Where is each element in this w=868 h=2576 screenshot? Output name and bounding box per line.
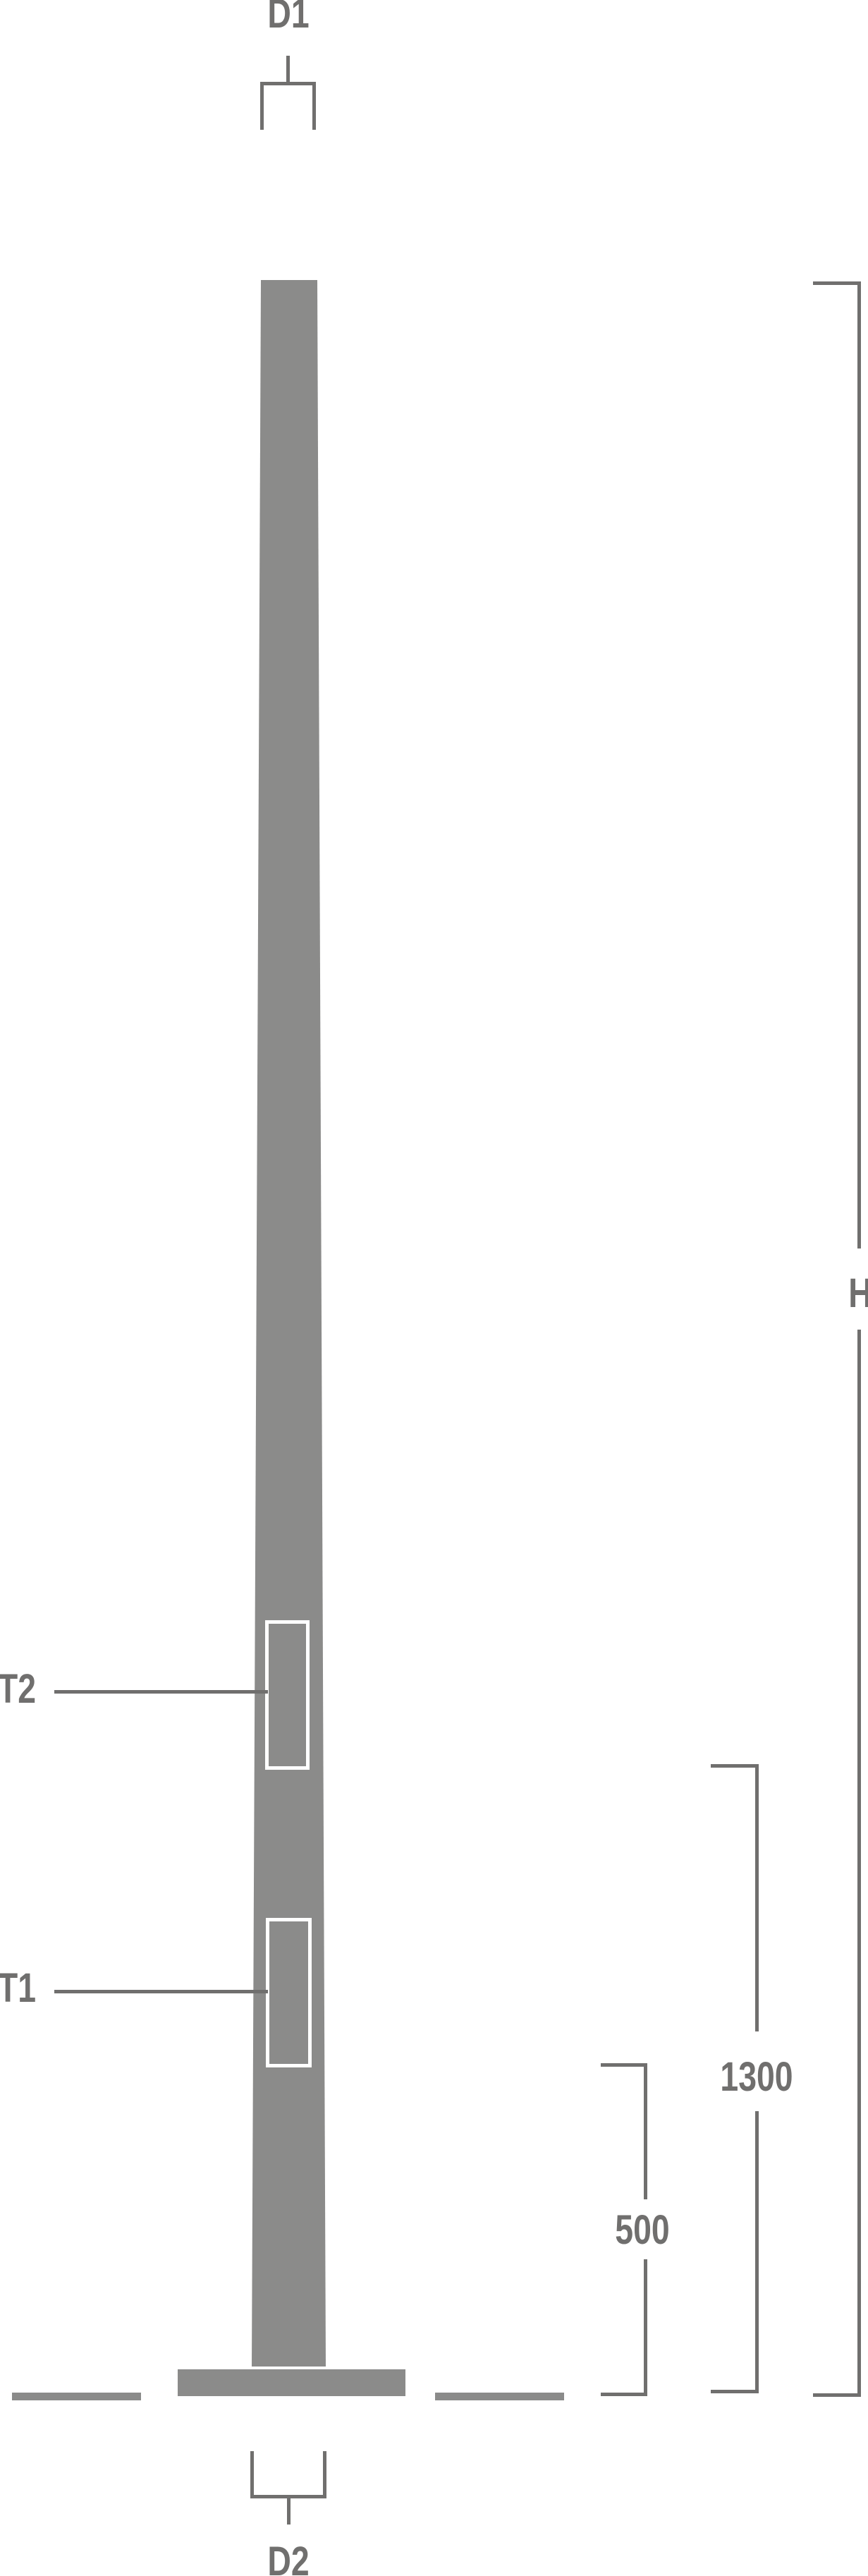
dim-1300-bottom-tick [711, 2390, 759, 2393]
h-bottom-tick [813, 2393, 861, 2397]
dim-500-label: 500 [586, 2210, 699, 2251]
d1-label: D1 [232, 0, 345, 35]
d1-bracket-leg-left [260, 82, 264, 130]
dim-1300-label: 1300 [700, 2057, 813, 2098]
pole-diagram-canvas: D1 T2 T1 H 1300 500 [0, 0, 868, 2576]
h-top-tick [813, 281, 861, 285]
h-extension-upper [857, 281, 861, 1248]
dim-500-extension-lower [644, 2259, 647, 2396]
ground-line-right [435, 2393, 564, 2400]
dim-500-bottom-tick [601, 2393, 647, 2396]
dim-500-top-tick [601, 2063, 647, 2067]
t1-label: T1 [0, 1968, 73, 2009]
h-label: H [804, 1273, 868, 1314]
t2-label: T2 [0, 1669, 73, 1710]
dim-1300-top-tick [711, 1764, 759, 1768]
d1-bracket-stem [286, 56, 290, 85]
d1-bracket-bar [260, 82, 316, 85]
d2-bracket-leg-right [323, 2451, 326, 2498]
d2-bracket-leg-left [250, 2451, 254, 2498]
t1-access-panel [266, 1918, 312, 2067]
d2-bracket-stem [287, 2498, 291, 2525]
t2-access-panel [265, 1620, 310, 1770]
t2-leader-line [54, 1690, 268, 1694]
pole-base-plate [178, 2369, 405, 2396]
h-extension-lower [857, 1330, 861, 2397]
dim-500-extension-upper [644, 2063, 647, 2199]
d1-bracket-leg-right [312, 82, 316, 130]
dim-1300-extension-upper [755, 1764, 759, 2031]
ground-line-left [12, 2393, 141, 2400]
d2-label: D2 [232, 2541, 345, 2576]
dim-1300-extension-lower [755, 2111, 759, 2393]
t1-leader-line [54, 1990, 268, 1993]
